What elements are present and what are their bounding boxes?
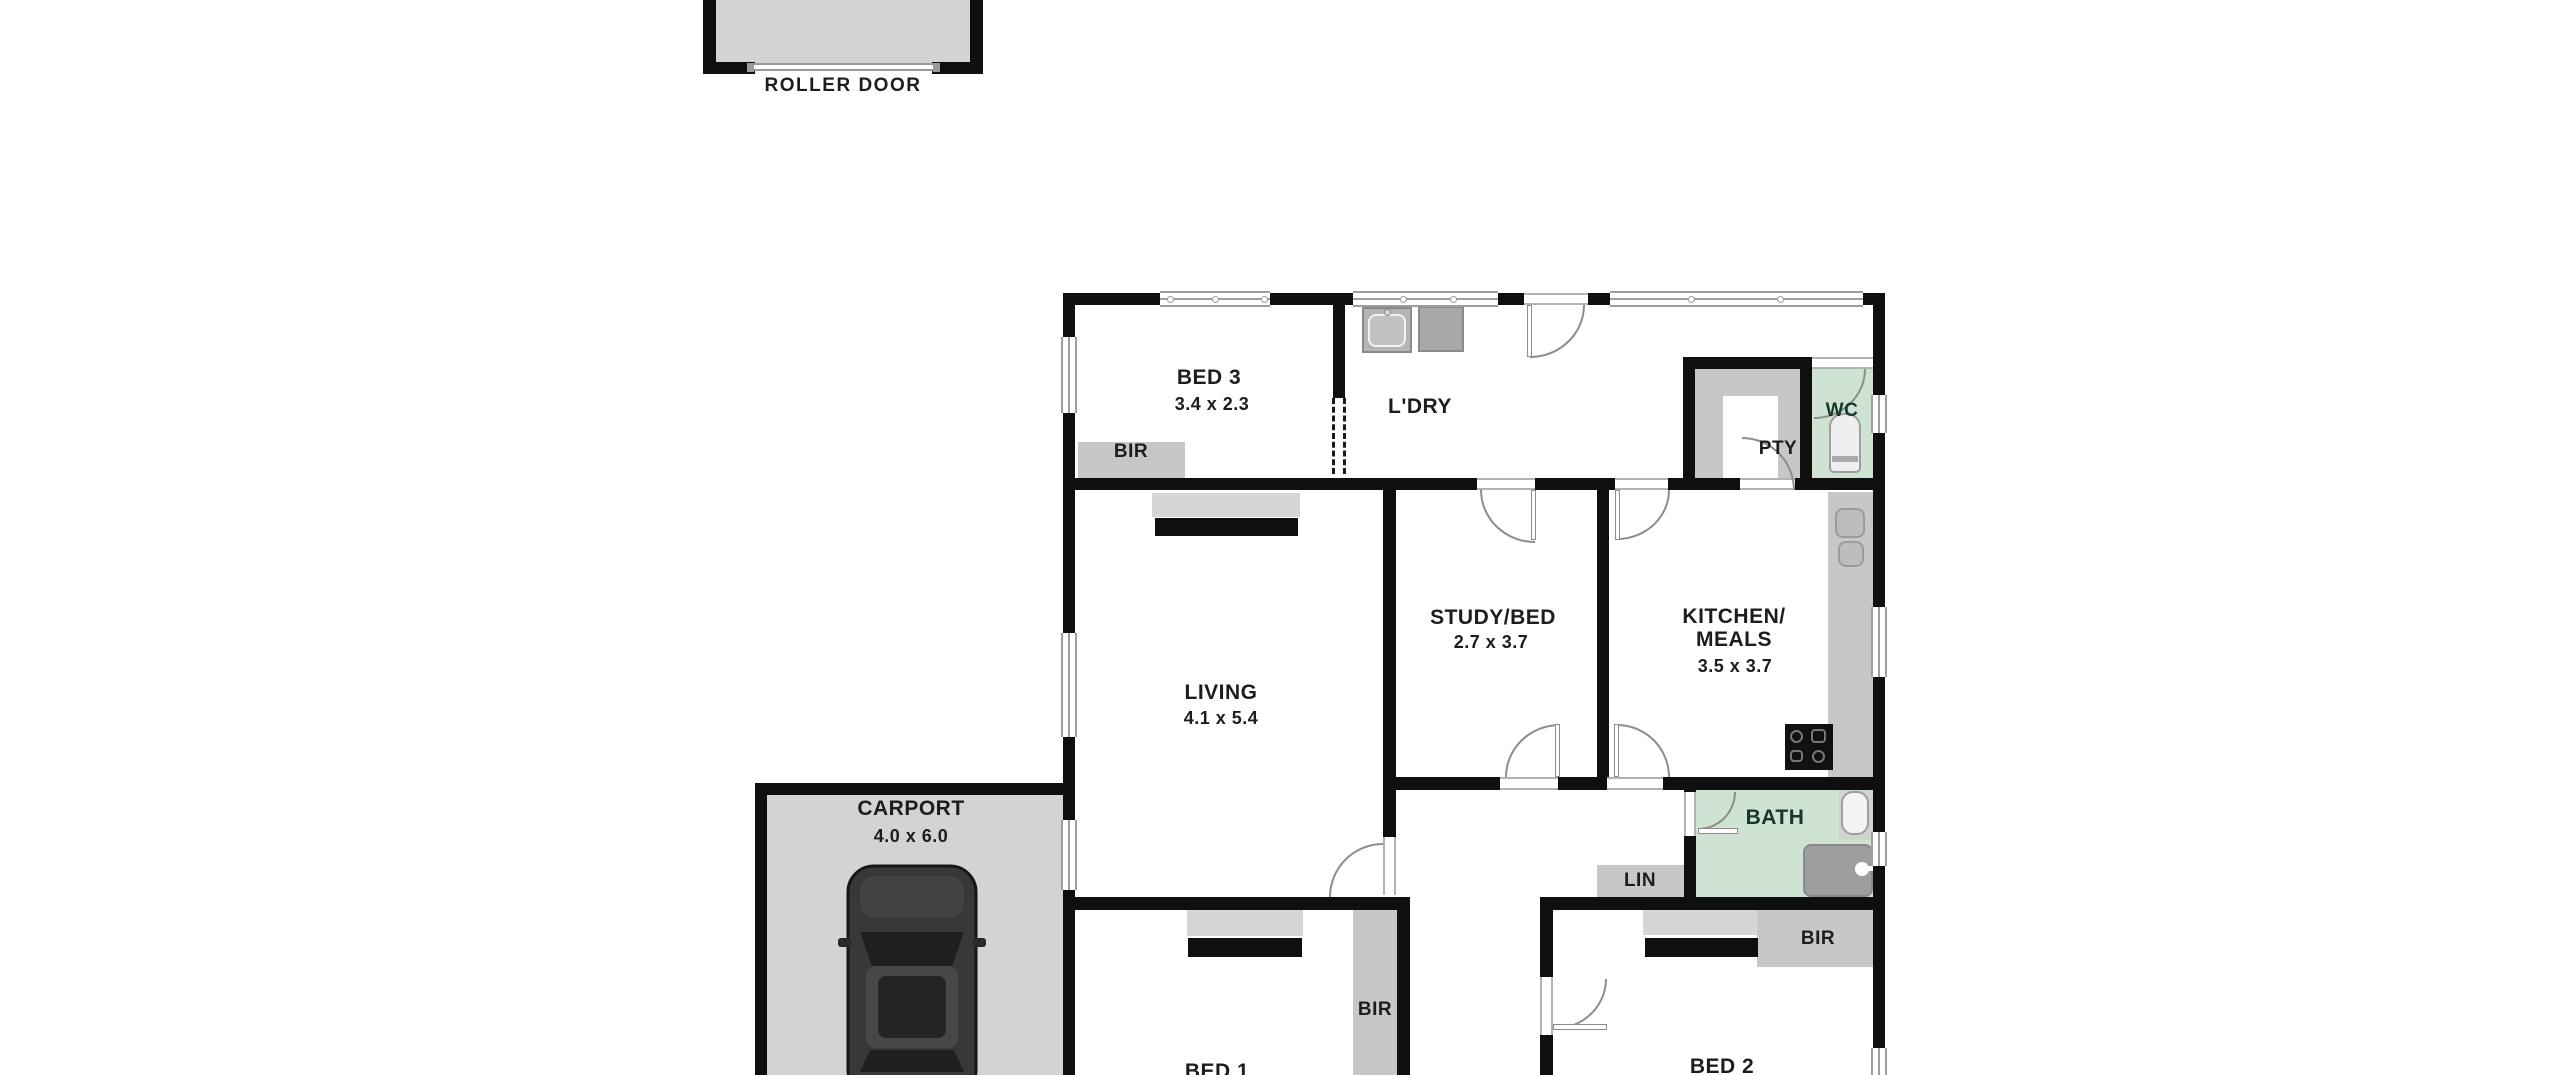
bir-bed3-label: BIR (1114, 441, 1148, 463)
stove-burner-2 (1811, 729, 1826, 743)
living-fireplace-hearth (1152, 493, 1300, 517)
wc-right-window (1871, 395, 1887, 433)
kitchen-label-line1: KITCHEN/ (1682, 605, 1785, 629)
stove-burner-3 (1790, 750, 1803, 762)
ldry-entry-door-leaf (1527, 305, 1532, 357)
hall-top-wall-a (1396, 777, 1500, 790)
kitchen-ldry-door-leaf (1615, 490, 1620, 540)
kitchen-ldry-door-opening (1615, 478, 1668, 490)
study-kitchen-wall (1597, 490, 1609, 777)
washing-machine-icon (1418, 306, 1464, 352)
living-door-swing (1329, 843, 1383, 897)
bed2-door-swing (1553, 979, 1607, 1030)
hall-top-wall-c (1663, 777, 1873, 790)
bir-bed1-closet (1353, 910, 1397, 1075)
garage-floor (716, 0, 970, 66)
kitchen-ldry-door-swing (1617, 490, 1670, 540)
study-label: STUDY/BED (1430, 606, 1556, 630)
bath-door-leaf (1698, 828, 1738, 834)
living-door-opening (1383, 837, 1396, 895)
bath-label: BATH (1746, 806, 1805, 830)
bathtub-icon (1841, 791, 1869, 835)
toilet-icon (1829, 413, 1861, 473)
laundry-trough-bowl (1368, 314, 1406, 347)
wc-door-opening (1812, 357, 1873, 369)
window-mullion (1450, 296, 1457, 303)
pty-label: PTY (1759, 438, 1797, 460)
window-mullion (1261, 296, 1268, 303)
kitchen-sink-icon (1835, 508, 1865, 538)
bed2-fireplace-icon (1645, 938, 1758, 957)
study-hall-door-opening (1500, 777, 1558, 790)
bed1-label: BED 1 (1185, 1060, 1249, 1075)
kitchen-hall-door-opening (1607, 777, 1663, 790)
kitchen-dims: 3.5 x 3.7 (1698, 656, 1773, 677)
roller-door-icon (752, 63, 935, 71)
carport-label: CARPORT (857, 797, 964, 821)
carport-wall-left (755, 783, 767, 1075)
bed2-label: BED 2 (1690, 1055, 1754, 1075)
bir-bed1-label: BIR (1358, 999, 1392, 1021)
living-left-window (1061, 633, 1077, 737)
bed3-label: BED 3 (1177, 366, 1241, 390)
ldry-top-window-2 (1610, 291, 1863, 307)
window-mullion (1167, 296, 1174, 303)
car-icon (838, 860, 986, 1075)
roller-door-end-left (747, 63, 754, 72)
stove-burner-4 (1812, 750, 1825, 763)
study-hall-door-swing (1505, 724, 1560, 777)
laundry-tap-icon (1384, 309, 1391, 316)
kitchen-label-line2: MEALS (1696, 628, 1772, 652)
study-door-leaf (1531, 490, 1536, 540)
toilet-cistern (1832, 456, 1858, 462)
pantry-top-wall (1683, 357, 1812, 369)
bed2-right-window (1871, 1048, 1887, 1075)
carport-dims: 4.0 x 6.0 (874, 826, 949, 847)
bath-door-opening (1684, 792, 1696, 836)
hall-top-wall-b (1558, 777, 1607, 790)
living-study-wall (1383, 490, 1396, 837)
bed3-right-wall (1333, 304, 1345, 398)
kitchen-hall-door-swing (1617, 724, 1670, 777)
bath-right-window (1871, 832, 1887, 866)
bed3-dims: 3.4 x 2.3 (1175, 394, 1250, 415)
bed3-cased-opening (1332, 398, 1346, 474)
roller-door-end-right (933, 63, 940, 72)
roller-door-label: ROLLER DOOR (765, 75, 922, 97)
pantry-left-wall (1683, 357, 1695, 490)
ldry-entry-opening (1524, 293, 1588, 305)
window-mullion (1688, 296, 1695, 303)
bed2-door-leaf (1553, 1024, 1607, 1030)
kitchen-hall-door-leaf (1614, 724, 1619, 777)
study-door-swing (1480, 490, 1535, 543)
kitchen-sink-bowl2 (1838, 541, 1864, 567)
stove-burner-1 (1790, 730, 1803, 743)
study-door-opening (1477, 478, 1535, 490)
window-mullion (1400, 296, 1407, 303)
carport-wall-top (755, 783, 1065, 795)
wc-label: WC (1826, 400, 1859, 422)
window-mullion (1777, 296, 1784, 303)
bed3-left-window (1061, 337, 1077, 413)
living-fireplace-icon (1155, 518, 1298, 536)
bed1-top-wall (1063, 897, 1410, 910)
living-left-window-2 (1061, 820, 1077, 890)
wc-left-wall (1800, 357, 1812, 490)
study-hall-door-leaf (1555, 724, 1560, 777)
bed2-door-opening (1540, 977, 1553, 1035)
lin-label: LIN (1624, 870, 1656, 892)
bed2-fireplace-hearth (1643, 910, 1757, 935)
ldry-top-window (1353, 291, 1498, 307)
ldry-label: L'DRY (1388, 395, 1452, 419)
bir-bed2-label: BIR (1801, 928, 1835, 950)
living-dims: 4.1 x 5.4 (1184, 708, 1259, 729)
bed2-top-wall (1540, 897, 1885, 910)
window-mullion (1212, 296, 1219, 303)
floorplan: ROLLER DOOR CARPORT 4.0 x 6.0 (0, 0, 2560, 1075)
ldry-entry-door-swing (1530, 305, 1585, 358)
bed1-fireplace-hearth (1187, 910, 1303, 936)
bed1-fireplace-icon (1188, 938, 1302, 957)
bed1-right-wall (1397, 910, 1410, 1075)
study-dims: 2.7 x 3.7 (1454, 632, 1529, 653)
kitchen-right-window (1871, 607, 1887, 677)
living-label: LIVING (1184, 681, 1257, 705)
